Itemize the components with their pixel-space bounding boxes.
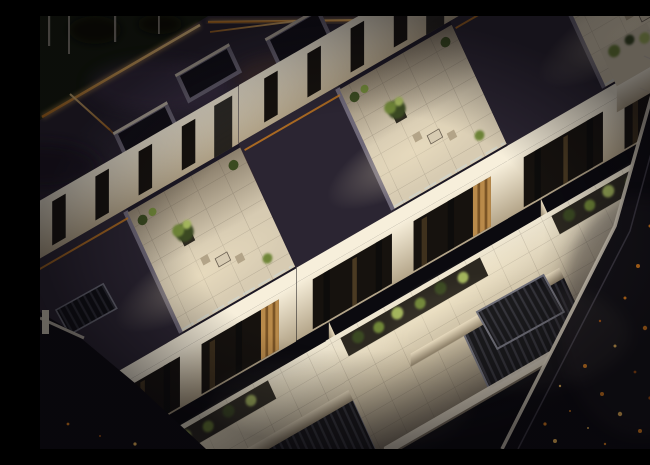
night-aerial-render: Night-time aerial 3D architectural rende… — [40, 16, 650, 449]
render-canvas — [40, 16, 650, 449]
vignette-overlay — [40, 16, 650, 449]
